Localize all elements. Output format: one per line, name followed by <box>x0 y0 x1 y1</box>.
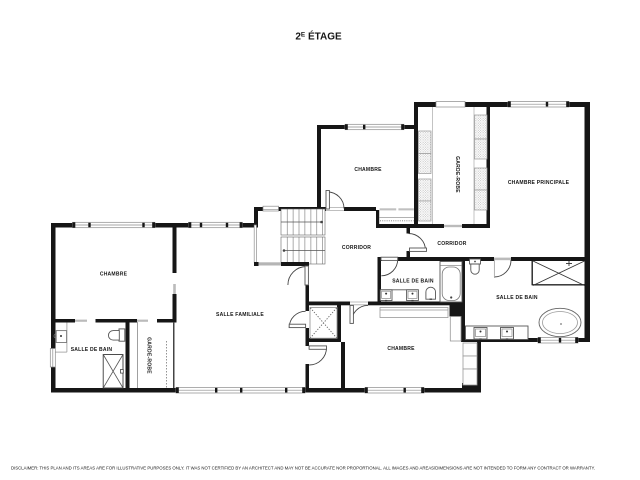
svg-text:GARDE-ROBE: GARDE-ROBE <box>146 337 152 374</box>
svg-text:GARDE-ROBE: GARDE-ROBE <box>454 156 460 193</box>
svg-text:CHAMBRE: CHAMBRE <box>387 346 415 352</box>
svg-text:SALLE FAMILIALE: SALLE FAMILIALE <box>216 312 264 318</box>
svg-text:SALLE DE BAIN: SALLE DE BAIN <box>392 279 434 285</box>
svg-text:DISCLAIMER: THIS PLAN AND ITS: DISCLAIMER: THIS PLAN AND ITS AREAS ARE … <box>11 466 595 471</box>
svg-text:CHAMBRE: CHAMBRE <box>354 167 382 173</box>
svg-text:CHAMBRE PRINCIPALE: CHAMBRE PRINCIPALE <box>508 180 570 186</box>
svg-text:CORRIDOR: CORRIDOR <box>437 241 466 247</box>
svg-text:SALLE DE BAIN: SALLE DE BAIN <box>496 295 538 301</box>
svg-text:CHAMBRE: CHAMBRE <box>100 272 128 278</box>
svg-text:CORRIDOR: CORRIDOR <box>342 245 371 251</box>
svg-text:SALLE DE BAIN: SALLE DE BAIN <box>71 347 113 353</box>
